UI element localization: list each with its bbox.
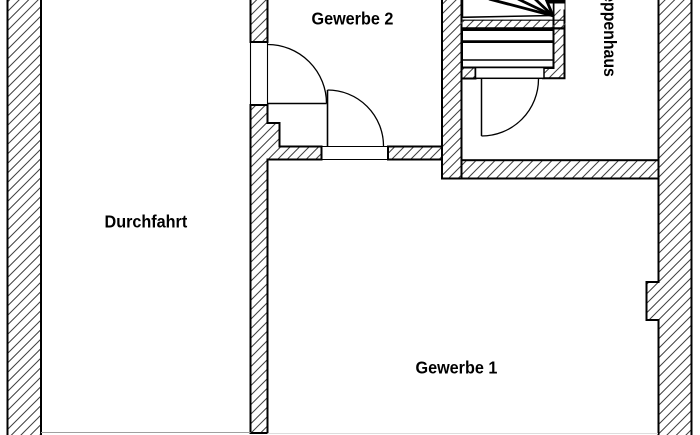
svg-text:Durchfahrt: Durchfahrt (105, 212, 188, 232)
svg-text:Gewerbe 2: Gewerbe 2 (312, 9, 394, 29)
svg-text:Treppenhaus: Treppenhaus (600, 0, 620, 77)
svg-text:Gewerbe 1: Gewerbe 1 (416, 358, 498, 378)
